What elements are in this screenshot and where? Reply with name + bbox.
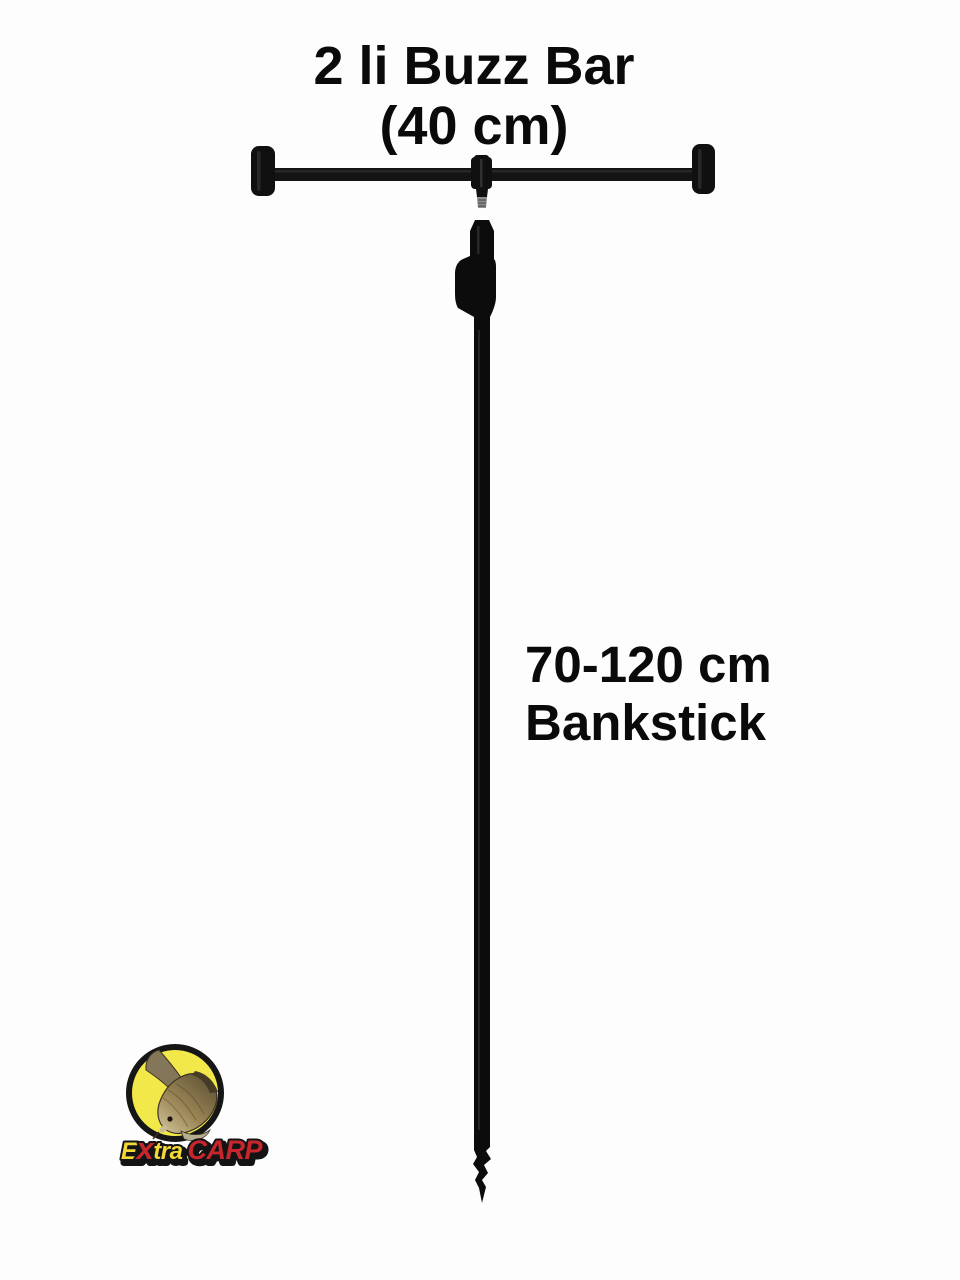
buzz-bar-left-post-highlight [257, 151, 261, 191]
bankstick-pole-highlight [478, 330, 480, 1130]
buzz-bar-left-post [251, 146, 275, 196]
logo-text-tra: tra [153, 1138, 182, 1165]
product-artwork: ExtraCARP ExtraCARP [0, 0, 960, 1280]
bankstick-illustration [455, 220, 496, 1203]
logo-text-carp: CARP [187, 1135, 263, 1165]
fish-eye [167, 1116, 172, 1121]
product-image-canvas: 2 li Buzz Bar (40 cm) 70-120 cm Bankstic… [0, 0, 960, 1280]
brand-logo: ExtraCARP ExtraCARP [121, 1047, 266, 1170]
bankstick-top-highlight [477, 226, 480, 254]
logo-text: ExtraCARP [121, 1131, 263, 1166]
buzz-bar-right-post-highlight [698, 149, 702, 189]
buzz-bar-illustration [251, 144, 715, 208]
buzz-bar-right-post [692, 144, 715, 194]
bankstick-body [455, 220, 496, 1203]
buzz-bar-stud-neck [476, 189, 488, 197]
buzz-bar-connector-highlight [480, 159, 483, 187]
logo-text-e: E [121, 1138, 138, 1165]
